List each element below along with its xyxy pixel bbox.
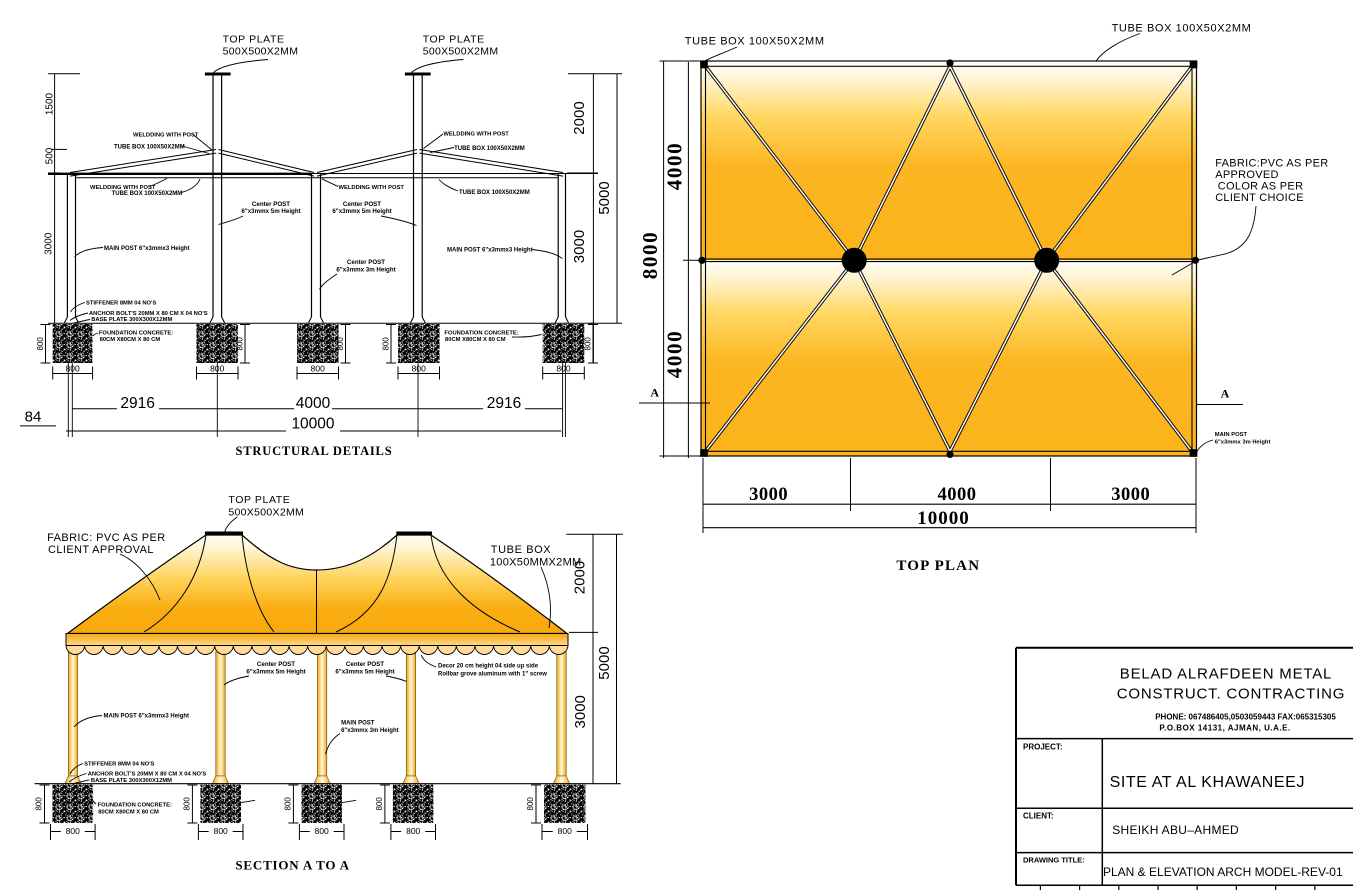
svg-text:5000: 5000 — [596, 181, 613, 214]
svg-text:WELDDING WITH POST: WELDDING WITH POST — [133, 133, 199, 139]
svg-text:500X500X2MM: 500X500X2MM — [423, 46, 499, 58]
svg-text:SITE AT AL KHAWANEEJ: SITE AT AL KHAWANEEJ — [1110, 774, 1305, 791]
svg-text:6"x3mmx 3m Height: 6"x3mmx 3m Height — [1215, 440, 1271, 446]
svg-text:SECTION A TO A: SECTION A TO A — [235, 858, 349, 873]
svg-text:80CM X80CM X 80 CM: 80CM X80CM X 80 CM — [445, 337, 506, 343]
svg-text:1500: 1500 — [45, 92, 56, 115]
svg-text:Center POST: Center POST — [346, 661, 384, 668]
svg-text:TUBE BOX: TUBE BOX — [491, 544, 551, 556]
svg-text:800: 800 — [214, 826, 228, 836]
svg-text:MAIN POST 6"x3mmx3 Height: MAIN POST 6"x3mmx3 Height — [104, 714, 190, 720]
svg-text:MAIN POST: MAIN POST — [341, 721, 375, 727]
svg-text:4000: 4000 — [938, 485, 977, 505]
svg-text:MAIN POST 6"x3mmx3 Height: MAIN POST 6"x3mmx3 Height — [104, 246, 190, 252]
svg-text:80CM X80CM X 80 CM: 80CM X80CM X 80 CM — [98, 810, 159, 816]
svg-text:BASE PLATE 300X300X12MM: BASE PLATE 300X300X12MM — [91, 317, 172, 323]
svg-text:Rollbar grove aluminum with 1": Rollbar grove aluminum with 1" screw — [438, 672, 547, 678]
svg-text:2916: 2916 — [120, 395, 154, 412]
svg-text:6"x3mmx 5m Height: 6"x3mmx 5m Height — [241, 208, 300, 215]
svg-text:800: 800 — [526, 797, 535, 811]
svg-text:TUBE BOX 100X50X2MM: TUBE BOX 100X50X2MM — [1112, 23, 1252, 35]
svg-text:PHONE: 067486405,0503059443: PHONE: 067486405,0503059443 FAX:06531530… — [1155, 712, 1336, 721]
svg-text:WELDDING WITH POST: WELDDING WITH POST — [443, 131, 509, 137]
svg-text:TOP PLAN: TOP PLAN — [896, 558, 980, 574]
svg-text:800: 800 — [375, 797, 384, 811]
svg-text:10000: 10000 — [291, 416, 334, 433]
svg-text:4000: 4000 — [663, 330, 687, 378]
svg-text:TUBE BOX 100X50X2MM: TUBE BOX 100X50X2MM — [685, 36, 825, 48]
svg-text:800: 800 — [336, 337, 345, 351]
svg-text:3000: 3000 — [1111, 485, 1150, 505]
svg-text:800: 800 — [558, 826, 572, 836]
svg-text:800: 800 — [35, 797, 44, 811]
svg-text:FOUNDATION CONCRETE:: FOUNDATION CONCRETE: — [98, 802, 172, 808]
svg-text:SHEIKH ABU–AHMED: SHEIKH ABU–AHMED — [1112, 823, 1239, 837]
svg-text:800: 800 — [283, 797, 292, 811]
svg-text:3000: 3000 — [44, 232, 55, 255]
svg-text:Center POST: Center POST — [257, 661, 295, 668]
svg-text:6"x3mmx 3m Height: 6"x3mmx 3m Height — [336, 267, 395, 274]
svg-text:Decor 20 cm height 04 side up: Decor 20 cm height 04 side up side — [438, 663, 539, 669]
svg-text:TOP PLATE: TOP PLATE — [423, 34, 485, 46]
svg-text:PROJECT:: PROJECT: — [1023, 742, 1063, 751]
svg-text:80CM X80CM X 80 CM: 80CM X80CM X 80 CM — [100, 337, 161, 343]
svg-text:FABRIC: PVC AS PER: FABRIC: PVC AS PER — [47, 532, 165, 544]
svg-text:FOUNDATION CONCRETE:: FOUNDATION CONCRETE: — [99, 330, 173, 336]
svg-text:800: 800 — [315, 826, 329, 836]
svg-text:800: 800 — [36, 337, 45, 351]
svg-text:800: 800 — [556, 364, 570, 374]
svg-text:Center POST: Center POST — [343, 201, 381, 208]
svg-text:800: 800 — [236, 337, 245, 351]
svg-text:MAIN POST 6"x3mmx3 Height: MAIN POST 6"x3mmx3 Height — [447, 248, 533, 254]
svg-text:3000: 3000 — [572, 695, 589, 728]
svg-text:5000: 5000 — [596, 646, 613, 679]
svg-text:3000: 3000 — [571, 230, 588, 263]
svg-text:ANCHOR BOLT'S 20MM X 80 CM X 0: ANCHOR BOLT'S 20MM X 80 CM X 04 NO'S — [88, 772, 207, 778]
svg-text:A: A — [1221, 387, 1230, 401]
svg-text:BASE PLATE 300X300X12MM: BASE PLATE 300X300X12MM — [91, 778, 172, 784]
svg-text:3000: 3000 — [749, 485, 788, 505]
svg-text:STIFFENER 8MM 04 NO'S: STIFFENER 8MM 04 NO'S — [86, 301, 156, 307]
svg-text:P.O.BOX 14131, AJMAN, U.A.E.: P.O.BOX 14131, AJMAN, U.A.E. — [1159, 724, 1290, 733]
svg-text:WELDDING WITH POST: WELDDING WITH POST — [90, 185, 156, 191]
svg-text:DRAWING TITLE:: DRAWING TITLE: — [1023, 855, 1085, 864]
svg-text:10000: 10000 — [917, 508, 970, 529]
svg-text:500X500X2MM: 500X500X2MM — [228, 506, 304, 518]
svg-text:4000: 4000 — [296, 395, 331, 412]
svg-text:FABRIC:PVC AS PER: FABRIC:PVC AS PER — [1215, 158, 1328, 170]
svg-text:800: 800 — [66, 364, 80, 374]
svg-text:4000: 4000 — [663, 142, 687, 190]
svg-text:800: 800 — [66, 826, 80, 836]
svg-text:WELDDING WITH POST: WELDDING WITH POST — [339, 185, 405, 191]
svg-text:APPROVED: APPROVED — [1215, 169, 1279, 181]
svg-text:TUBE BOX 100X50X2MM: TUBE BOX 100X50X2MM — [459, 190, 530, 196]
svg-text:TUBE BOX 100X50X2MM: TUBE BOX 100X50X2MM — [454, 146, 525, 152]
svg-text:STRUCTURAL DETAILS: STRUCTURAL DETAILS — [236, 444, 393, 458]
svg-text:TUBE BOX 100X50X2MM: TUBE BOX 100X50X2MM — [114, 144, 185, 150]
svg-text:100X50MMX2MM: 100X50MMX2MM — [490, 556, 582, 568]
svg-text:800: 800 — [406, 826, 420, 836]
svg-text:6"x3mmx 5m Height: 6"x3mmx 5m Height — [246, 669, 305, 676]
svg-text:6"x3mmx 5m Height: 6"x3mmx 5m Height — [332, 208, 391, 215]
svg-text:500X500X2MM: 500X500X2MM — [223, 46, 299, 58]
svg-text:TUBE BOX 100X50X2MM: TUBE BOX 100X50X2MM — [112, 191, 183, 197]
svg-text:CLIENT APPROVAL: CLIENT APPROVAL — [48, 544, 154, 556]
svg-text:800: 800 — [182, 797, 191, 811]
svg-text:6"x3mmx 5m Height: 6"x3mmx 5m Height — [335, 669, 394, 676]
svg-text:TOP PLATE: TOP PLATE — [223, 34, 285, 46]
svg-text:STIFFENER 8MM 04 NO'S: STIFFENER 8MM 04 NO'S — [84, 762, 154, 768]
svg-text:PLAN & ELEVATION ARCH MODEL-RE: PLAN & ELEVATION ARCH MODEL-REV-01 — [1103, 865, 1343, 879]
svg-text:COLOR AS PER: COLOR AS PER — [1218, 181, 1304, 193]
svg-text:2000: 2000 — [571, 101, 588, 134]
svg-text:Center POST: Center POST — [252, 201, 290, 208]
svg-text:CLIENT CHOICE: CLIENT CHOICE — [1215, 192, 1304, 204]
svg-text:800: 800 — [311, 364, 325, 374]
svg-text:TOP PLATE: TOP PLATE — [228, 494, 290, 506]
svg-text:FOUNDATION CONCRETE:: FOUNDATION CONCRETE: — [444, 330, 518, 336]
svg-text:Center POST: Center POST — [347, 259, 385, 266]
svg-text:800: 800 — [382, 337, 391, 351]
svg-text:CONSTRUCT. CONTRACTING: CONSTRUCT. CONTRACTING — [1117, 686, 1345, 703]
svg-text:500: 500 — [45, 147, 56, 164]
svg-text:MAIN POST: MAIN POST — [1215, 432, 1248, 438]
svg-text:2916: 2916 — [487, 395, 521, 412]
svg-text:BELAD ALRAFDEEN METAL: BELAD ALRAFDEEN METAL — [1120, 666, 1332, 683]
svg-text:CLIENT:: CLIENT: — [1023, 812, 1054, 821]
svg-text:8000: 8000 — [638, 231, 662, 279]
svg-text:84: 84 — [25, 409, 42, 426]
svg-text:ANCHOR BOLT'S 20MM X 80 CM X 0: ANCHOR BOLT'S 20MM X 80 CM X 04 NO'S — [89, 311, 208, 317]
svg-text:800: 800 — [584, 337, 593, 351]
svg-text:800: 800 — [412, 364, 426, 374]
svg-text:A: A — [650, 386, 659, 400]
svg-text:6"x3mmx 3m Height: 6"x3mmx 3m Height — [341, 728, 399, 734]
